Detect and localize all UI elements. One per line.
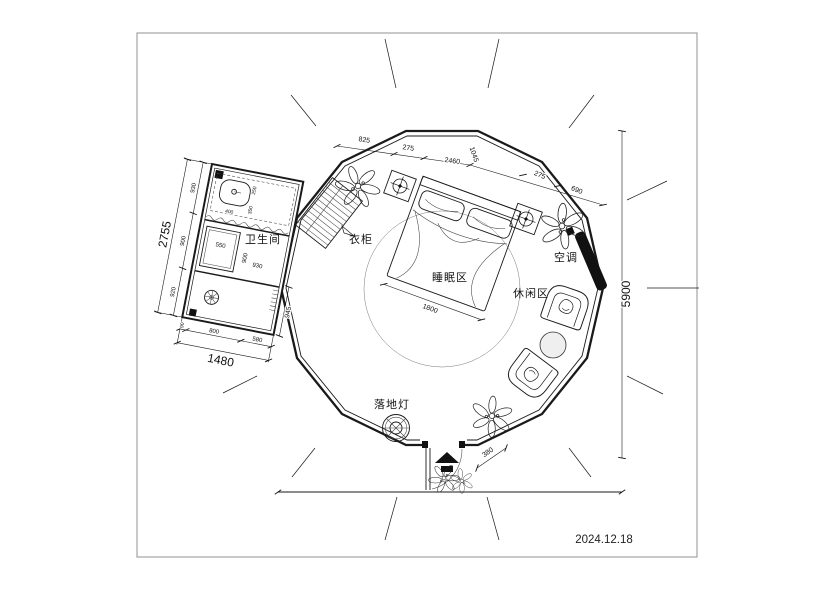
column <box>214 170 223 179</box>
label-ac: 空调 <box>554 250 578 264</box>
floor-plan-drawing: 400 250 350 550 900 930 <box>0 0 837 592</box>
floor-plan-page: 400 250 350 550 900 930 <box>0 0 837 592</box>
dim-height-total: 5900 <box>619 280 633 307</box>
label-sleeping-area: 睡眠区 <box>432 271 468 284</box>
label-floor-lamp: 落地灯 <box>374 398 410 411</box>
label-bathroom: 卫生间 <box>245 232 281 246</box>
label-leisure-area: 休闲区 <box>513 286 549 300</box>
side-table <box>540 332 566 358</box>
date-text: 2024.12.18 <box>575 534 633 546</box>
label-wardrobe: 衣柜 <box>349 232 373 246</box>
